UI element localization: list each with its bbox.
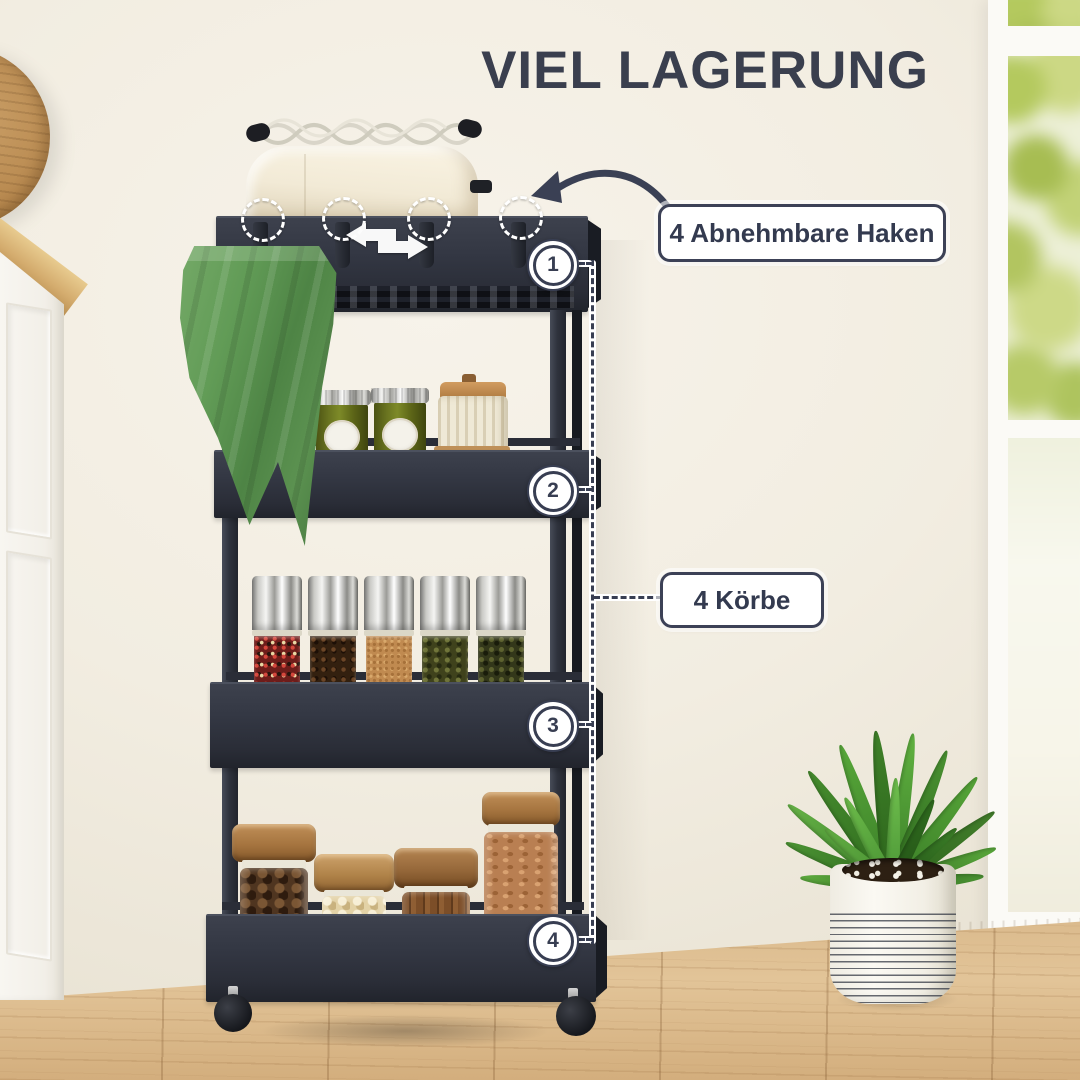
plant-pot <box>830 864 956 1004</box>
callout-hooks-label: 4 Abnehmbare Haken <box>670 218 935 249</box>
tier-number: 3 <box>547 714 559 738</box>
cart-side-rail <box>572 310 582 452</box>
almond-jar <box>484 832 558 924</box>
pot-stripes <box>830 908 956 1004</box>
tier-marker-3-number: 3 <box>533 706 574 747</box>
caster-wheel <box>556 996 596 1036</box>
cart-shadow <box>205 1008 605 1054</box>
cart-post <box>550 310 566 452</box>
garden-blur <box>1008 56 1080 420</box>
cabinet-panel <box>6 550 52 961</box>
tier-marker-1-number: 1 <box>533 245 574 286</box>
pickle-jar-label <box>382 418 418 452</box>
product-scene: VIEL LAGERUNG 1 2 3 4 4 Abnehmbare Haken… <box>0 0 1080 1080</box>
toaster-seam <box>304 154 306 218</box>
cart-post <box>222 518 238 684</box>
spice-jar-cap <box>476 576 526 630</box>
window-pane-top <box>1008 0 1080 26</box>
tier-marker-4-number: 4 <box>533 921 574 962</box>
tier-number: 2 <box>547 479 559 503</box>
tier-number: 4 <box>547 929 559 953</box>
spice-jar-cap <box>420 576 470 630</box>
caster-wheel <box>214 994 252 1032</box>
cart-basket-4-side <box>596 916 607 998</box>
walnut-jar-lid <box>232 824 316 862</box>
tier-marker-2: 2 <box>527 465 579 517</box>
pot-soil <box>842 858 944 882</box>
slide-arrow-icon <box>344 222 430 260</box>
almond-jar-lid <box>482 792 560 826</box>
tier-marker-4: 4 <box>527 915 579 967</box>
callout-hooks: 4 Abnehmbare Haken <box>658 204 946 262</box>
cart-side-rail <box>572 518 582 684</box>
garden-blur <box>1008 0 1080 26</box>
pickle-jar-label <box>324 420 360 454</box>
page-title: VIEL LAGERUNG <box>445 40 965 101</box>
dashed-circle-icon <box>241 198 285 242</box>
tier-marker-1: 1 <box>527 239 579 291</box>
spice-jar-cap <box>252 576 302 630</box>
callout-baskets-label: 4 Körbe <box>694 585 791 616</box>
wall-shadow <box>596 240 650 940</box>
board-grain <box>0 46 50 228</box>
cutting-board <box>0 46 50 228</box>
tier-marker-3: 3 <box>527 700 579 752</box>
cart-post <box>550 518 566 684</box>
callout-baskets: 4 Körbe <box>660 572 824 628</box>
cabinet-panel <box>6 302 52 539</box>
cart-side-rail <box>572 768 582 916</box>
window-pane-main <box>1008 56 1080 420</box>
curved-arrow-icon <box>528 158 674 216</box>
pickle-jar-lid <box>371 388 429 403</box>
annotation-line-vertical <box>589 260 596 944</box>
cinnamon-jar-lid <box>394 848 478 888</box>
tier-marker-2-number: 2 <box>533 471 574 512</box>
cabinet <box>0 252 64 1000</box>
toaster-lever <box>470 180 492 193</box>
spice-jar-cap <box>308 576 358 630</box>
spice-jar-cap <box>364 576 414 630</box>
pickle-jar-lid <box>313 390 371 405</box>
towel-fold-top <box>180 246 338 261</box>
macadamia-jar-lid <box>314 854 394 892</box>
annotation-line-baskets <box>594 594 662 601</box>
tier-number: 1 <box>547 253 559 277</box>
